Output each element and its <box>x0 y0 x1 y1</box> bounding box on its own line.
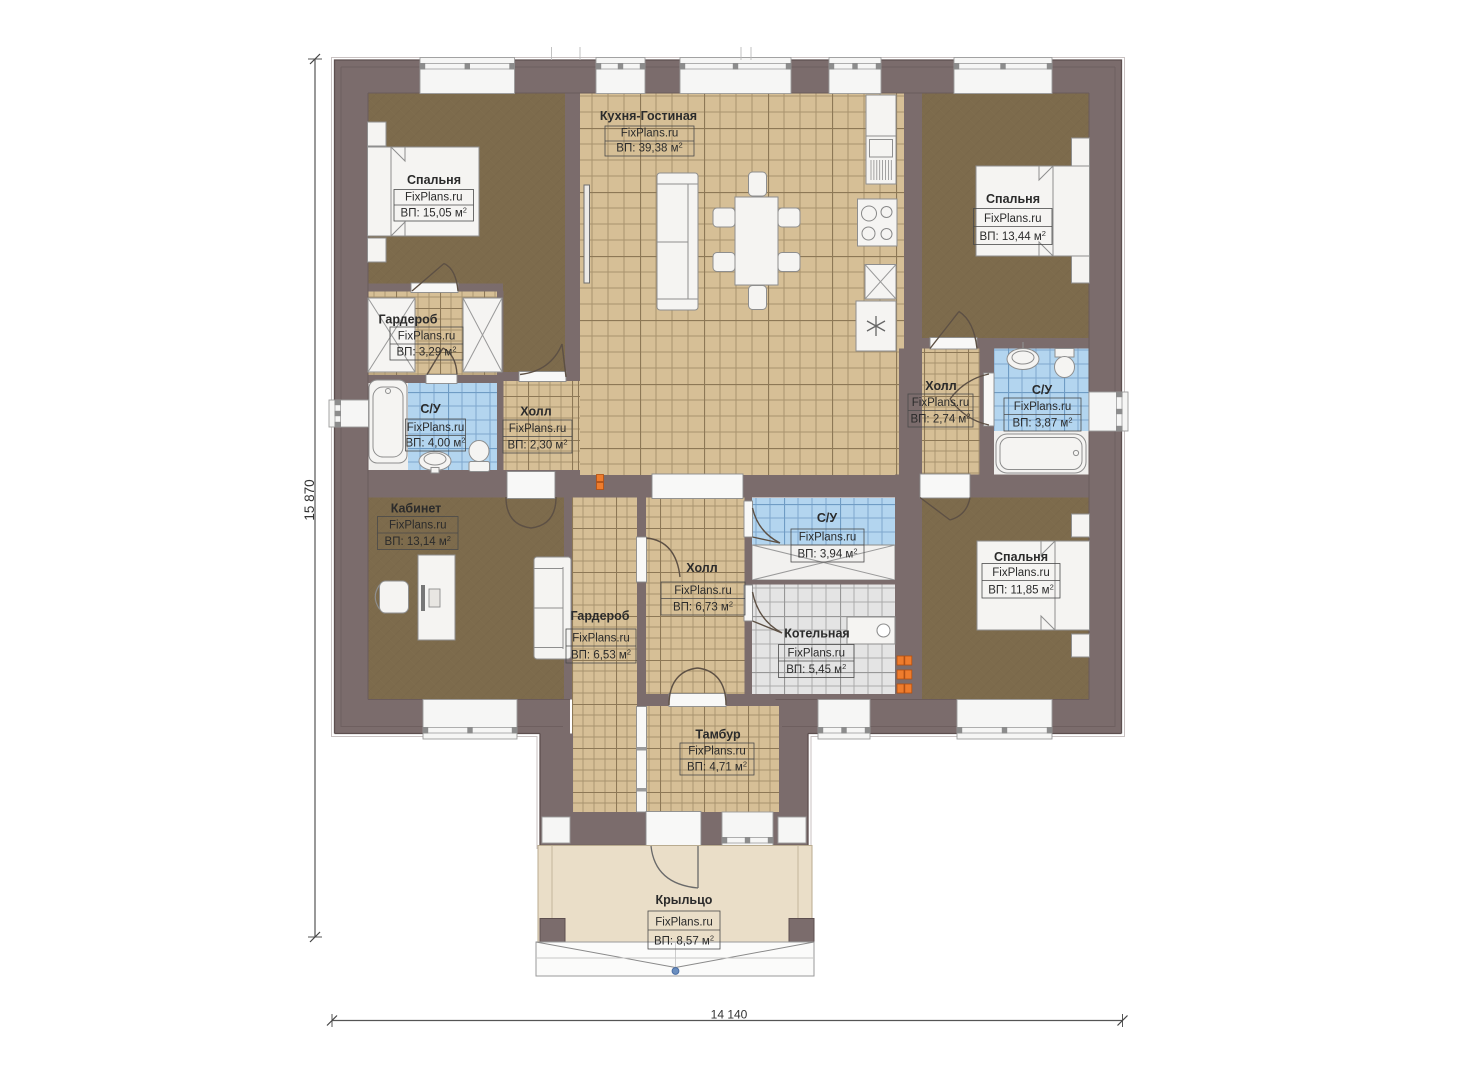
svg-text:Крыльцо: Крыльцо <box>656 893 713 907</box>
svg-text:С/У: С/У <box>817 511 838 525</box>
svg-text:ВП: 13,44 м2: ВП: 13,44 м2 <box>980 229 1046 243</box>
svg-text:FixPlans.ru: FixPlans.ru <box>1014 401 1072 413</box>
svg-text:FixPlans.ru: FixPlans.ru <box>405 192 463 204</box>
svg-text:FixPlans.ru: FixPlans.ru <box>787 648 845 660</box>
svg-text:ВП: 4,00 м2: ВП: 4,00 м2 <box>406 436 466 450</box>
svg-text:ВП: 2,74 м2: ВП: 2,74 м2 <box>911 412 971 426</box>
svg-text:FixPlans.ru: FixPlans.ru <box>572 633 630 645</box>
svg-text:Спальня: Спальня <box>986 192 1040 206</box>
svg-text:FixPlans.ru: FixPlans.ru <box>398 331 456 343</box>
svg-text:ВП: 3,87 м2: ВП: 3,87 м2 <box>1013 416 1073 430</box>
svg-text:FixPlans.ru: FixPlans.ru <box>509 423 567 435</box>
svg-text:15 870: 15 870 <box>302 479 317 520</box>
svg-text:ВП: 11,85 м2: ВП: 11,85 м2 <box>988 583 1054 597</box>
svg-text:FixPlans.ru: FixPlans.ru <box>984 213 1042 225</box>
svg-text:Котельная: Котельная <box>784 627 849 641</box>
svg-text:FixPlans.ru: FixPlans.ru <box>799 532 857 544</box>
svg-text:С/У: С/У <box>420 402 441 416</box>
svg-text:ВП: 4,71 м2: ВП: 4,71 м2 <box>687 760 747 774</box>
svg-text:Кабинет: Кабинет <box>391 502 442 516</box>
svg-text:ВП: 15,05 м2: ВП: 15,05 м2 <box>401 206 467 220</box>
svg-text:FixPlans.ru: FixPlans.ru <box>912 397 970 409</box>
svg-text:ВП: 39,38 м2: ВП: 39,38 м2 <box>616 141 682 155</box>
svg-text:Гардероб: Гардероб <box>570 609 629 623</box>
svg-text:ВП: 6,53 м2: ВП: 6,53 м2 <box>571 648 631 662</box>
svg-text:ВП: 3,29 м2: ВП: 3,29 м2 <box>397 345 457 359</box>
svg-text:ВП: 2,30 м2: ВП: 2,30 м2 <box>508 438 568 452</box>
svg-text:Гардероб: Гардероб <box>378 313 437 327</box>
svg-text:ВП: 8,57 м2: ВП: 8,57 м2 <box>654 934 714 948</box>
svg-text:FixPlans.ru: FixPlans.ru <box>407 422 465 434</box>
svg-text:Холл: Холл <box>520 405 551 419</box>
svg-text:Холл: Холл <box>925 379 956 393</box>
svg-text:Тамбур: Тамбур <box>695 728 741 742</box>
svg-text:FixPlans.ru: FixPlans.ru <box>621 128 679 140</box>
svg-text:FixPlans.ru: FixPlans.ru <box>674 585 732 597</box>
svg-text:FixPlans.ru: FixPlans.ru <box>688 746 746 758</box>
svg-text:ВП: 5,45 м2: ВП: 5,45 м2 <box>786 662 846 676</box>
svg-text:ВП: 13,14 м2: ВП: 13,14 м2 <box>385 534 451 548</box>
svg-text:FixPlans.ru: FixPlans.ru <box>655 917 713 929</box>
svg-text:FixPlans.ru: FixPlans.ru <box>389 520 447 532</box>
svg-text:Кухня-Гостиная: Кухня-Гостиная <box>600 109 697 123</box>
svg-text:Спальня: Спальня <box>994 550 1048 564</box>
svg-text:Холл: Холл <box>686 561 717 575</box>
svg-text:С/У: С/У <box>1032 383 1053 397</box>
svg-text:14 140: 14 140 <box>711 1008 748 1022</box>
svg-text:FixPlans.ru: FixPlans.ru <box>992 567 1050 579</box>
svg-text:ВП: 3,94 м2: ВП: 3,94 м2 <box>798 547 858 561</box>
svg-text:ВП: 6,73 м2: ВП: 6,73 м2 <box>673 600 733 614</box>
svg-text:Спальня: Спальня <box>407 173 461 187</box>
